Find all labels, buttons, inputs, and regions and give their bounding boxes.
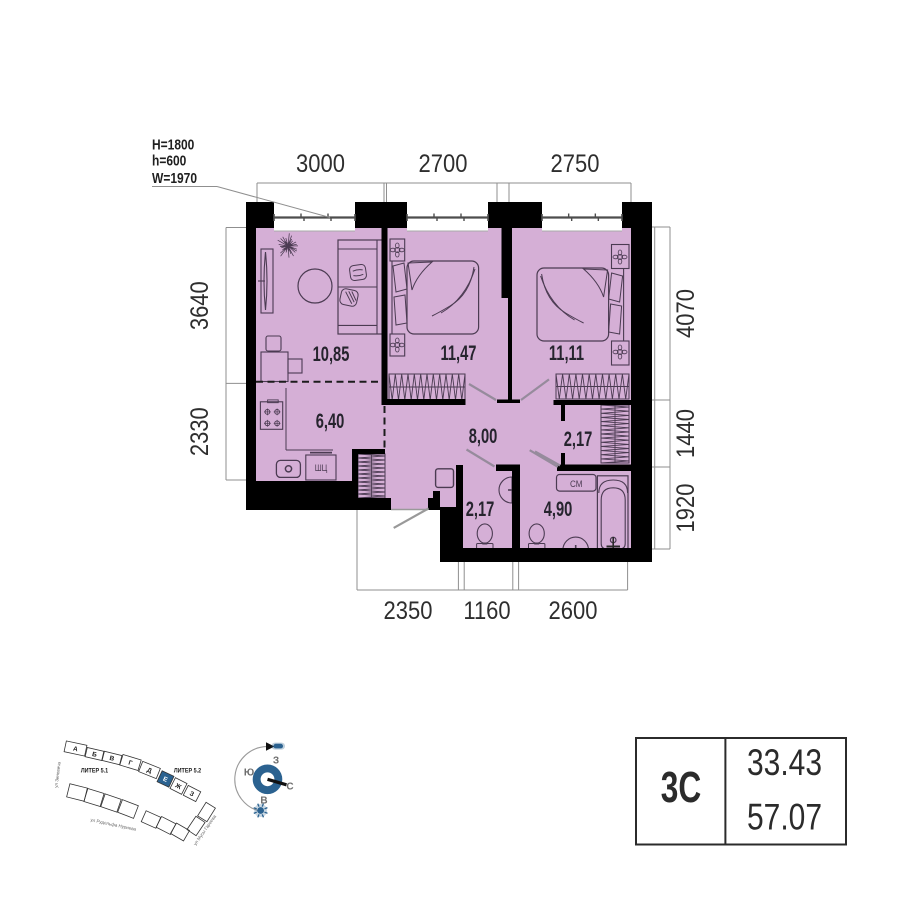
svg-text:1920: 1920: [672, 484, 700, 533]
svg-text:ул Зиневича: ул Зиневича: [53, 761, 61, 788]
svg-text:3000: 3000: [296, 150, 345, 178]
svg-text:1160: 1160: [463, 597, 510, 625]
svg-text:33.43: 33.43: [747, 742, 822, 784]
svg-text:ЛИТЕР 5.1: ЛИТЕР 5.1: [81, 767, 109, 775]
svg-text:10,85: 10,85: [313, 342, 350, 365]
svg-text:8,00: 8,00: [469, 424, 498, 447]
svg-text:ул Мусы Гареева: ул Мусы Гареева: [192, 814, 217, 847]
svg-text:ул Рудольфа Нуриева: ул Рудольфа Нуриева: [90, 817, 137, 832]
svg-text:З: З: [273, 756, 279, 767]
svg-text:3С: 3С: [661, 763, 701, 812]
svg-text:H=1800: H=1800: [152, 136, 194, 153]
svg-text:3640: 3640: [186, 281, 214, 330]
svg-text:Ж: Ж: [173, 782, 182, 791]
svg-text:h=600: h=600: [152, 152, 186, 169]
svg-text:57.07: 57.07: [747, 796, 822, 838]
svg-text:1440: 1440: [672, 409, 700, 458]
svg-text:А: А: [72, 745, 78, 753]
svg-text:Д: Д: [146, 767, 153, 775]
svg-text:2600: 2600: [549, 597, 598, 625]
svg-text:СМ: СМ: [570, 478, 582, 489]
svg-text:2350: 2350: [384, 597, 433, 625]
svg-text:Г: Г: [127, 759, 133, 767]
svg-text:С: С: [286, 782, 293, 793]
svg-text:11,47: 11,47: [441, 341, 477, 364]
svg-text:Б: Б: [91, 751, 97, 759]
svg-text:2330: 2330: [186, 407, 214, 456]
svg-text:2,17: 2,17: [466, 497, 495, 520]
svg-text:ЛИТЕР 5.2: ЛИТЕР 5.2: [174, 767, 202, 775]
svg-text:6,40: 6,40: [316, 409, 345, 432]
svg-text:2750: 2750: [551, 150, 600, 178]
svg-text:2,17: 2,17: [564, 427, 593, 450]
svg-text:2700: 2700: [419, 150, 468, 178]
svg-text:Ю: Ю: [244, 768, 254, 779]
svg-text:4,90: 4,90: [544, 497, 573, 520]
svg-text:В: В: [109, 755, 116, 763]
svg-text:ШЦ: ШЦ: [315, 462, 328, 473]
svg-text:4070: 4070: [672, 289, 700, 338]
svg-text:11,11: 11,11: [549, 341, 584, 364]
svg-text:W=1970: W=1970: [152, 170, 197, 187]
svg-text:З: З: [188, 790, 195, 798]
